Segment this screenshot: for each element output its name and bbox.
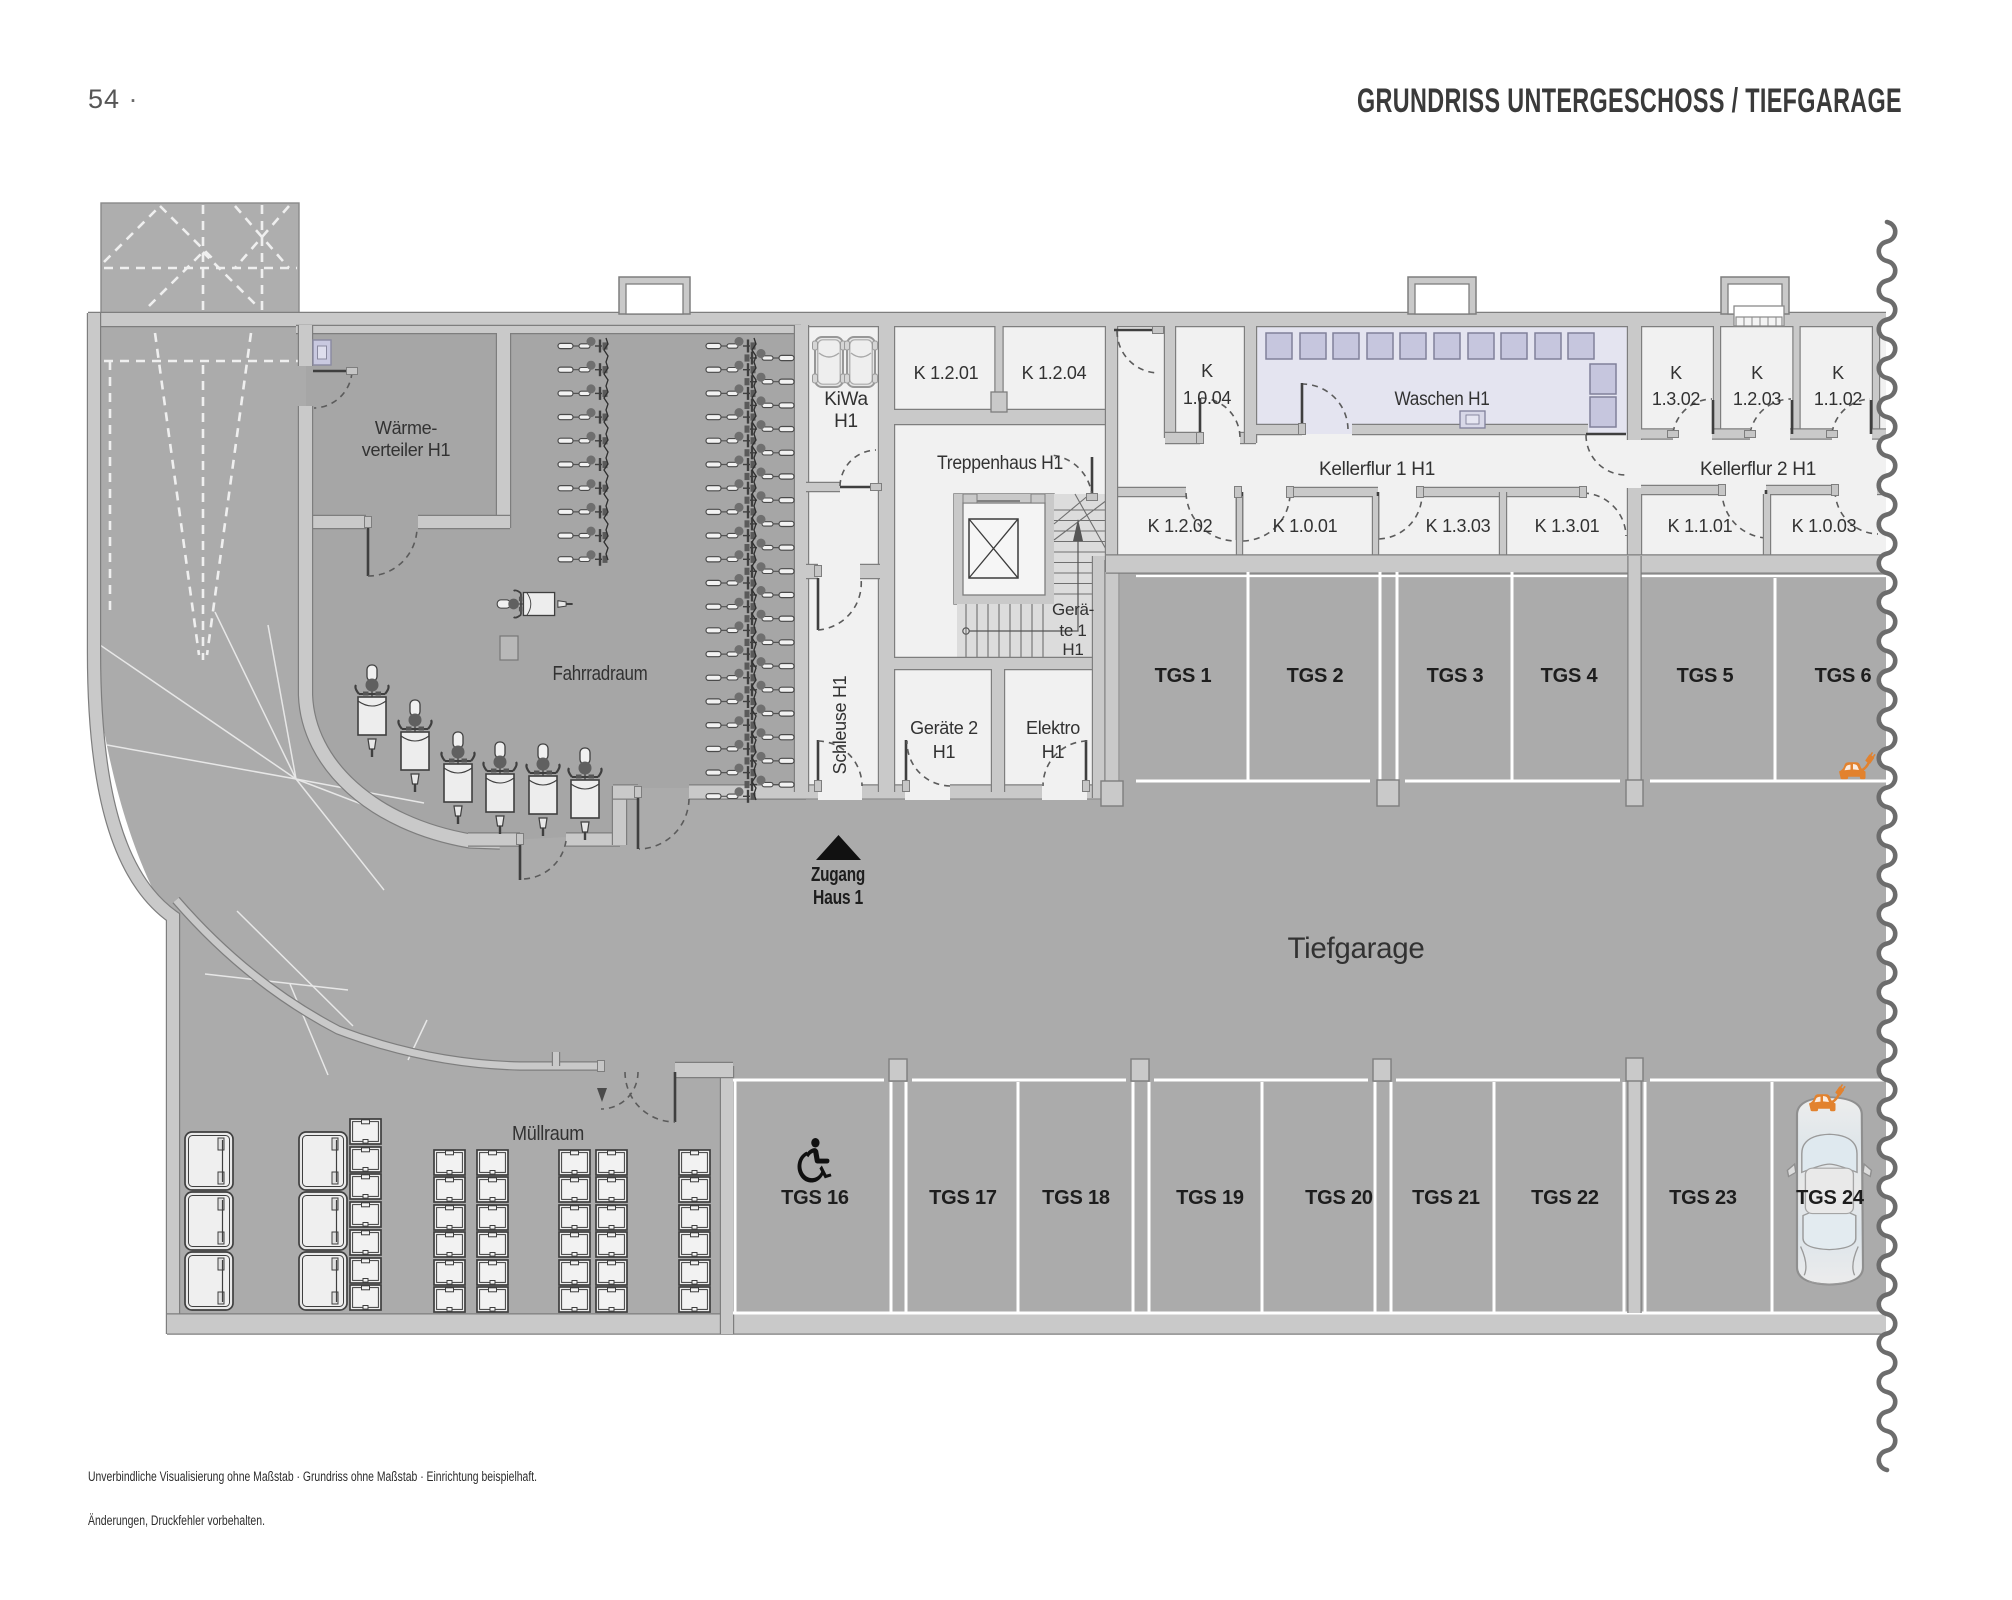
svg-text:1.3.02: 1.3.02 [1652, 389, 1701, 409]
svg-text:GRUNDRISS UNTERGESCHOSS / TIEF: GRUNDRISS UNTERGESCHOSS / TIEFGARAGE [1357, 82, 1902, 120]
svg-text:K 1.2.04: K 1.2.04 [1022, 363, 1087, 383]
svg-text:KiWa: KiWa [824, 389, 868, 410]
svg-text:K: K [1751, 363, 1763, 383]
svg-text:1.0.04: 1.0.04 [1183, 388, 1232, 408]
svg-text:Unverbindliche Visualisierung: Unverbindliche Visualisierung ohne Maßst… [88, 1469, 537, 1484]
svg-text:TGS 23: TGS 23 [1669, 1187, 1737, 1209]
svg-text:TGS 18: TGS 18 [1042, 1187, 1110, 1209]
svg-text:TGS 19: TGS 19 [1176, 1187, 1244, 1209]
svg-text:TGS 1: TGS 1 [1155, 665, 1212, 687]
svg-text:H1: H1 [933, 742, 956, 762]
svg-text:Tiefgarage: Tiefgarage [1288, 932, 1425, 965]
svg-text:te 1: te 1 [1059, 621, 1086, 640]
svg-text:TGS 3: TGS 3 [1427, 665, 1484, 687]
svg-text:TGS 5: TGS 5 [1677, 665, 1734, 687]
svg-text:Wärme-: Wärme- [375, 418, 437, 438]
svg-text:K 1.2.02: K 1.2.02 [1148, 516, 1213, 536]
svg-text:Kellerflur 1 H1: Kellerflur 1 H1 [1319, 459, 1435, 480]
svg-text:K: K [1832, 363, 1844, 383]
svg-text:Änderungen, Druckfehler vorbeh: Änderungen, Druckfehler vorbehalten. [88, 1513, 265, 1528]
svg-text:TGS 21: TGS 21 [1412, 1187, 1480, 1209]
svg-text:TGS 16: TGS 16 [781, 1187, 849, 1209]
svg-text:K: K [1201, 361, 1213, 381]
svg-text:K 1.0.03: K 1.0.03 [1792, 516, 1857, 536]
svg-text:54 ·: 54 · [88, 84, 139, 114]
svg-text:TGS 2: TGS 2 [1287, 665, 1344, 687]
svg-text:Fahrradraum: Fahrradraum [553, 663, 648, 685]
svg-text:H1: H1 [1062, 640, 1083, 659]
svg-text:K 1.2.01: K 1.2.01 [914, 363, 979, 383]
svg-text:K 1.3.01: K 1.3.01 [1535, 516, 1600, 536]
svg-text:H1: H1 [1042, 742, 1065, 762]
svg-text:Gerä-: Gerä- [1052, 600, 1094, 619]
svg-text:Treppenhaus H1: Treppenhaus H1 [937, 453, 1063, 474]
svg-text:Waschen H1: Waschen H1 [1395, 389, 1490, 410]
svg-text:Geräte 2: Geräte 2 [910, 718, 978, 738]
svg-text:H1: H1 [834, 411, 858, 432]
svg-text:K 1.0.01: K 1.0.01 [1273, 516, 1338, 536]
svg-text:K: K [1670, 363, 1682, 383]
svg-text:TGS 22: TGS 22 [1531, 1187, 1599, 1209]
svg-text:Müllraum: Müllraum [512, 1123, 584, 1145]
svg-text:TGS 24: TGS 24 [1796, 1187, 1865, 1209]
svg-text:Schleuse H1: Schleuse H1 [830, 675, 850, 774]
svg-text:K 1.3.03: K 1.3.03 [1426, 516, 1491, 536]
svg-text:TGS 20: TGS 20 [1305, 1187, 1373, 1209]
svg-text:TGS 17: TGS 17 [929, 1187, 997, 1209]
svg-text:1.2.03: 1.2.03 [1733, 389, 1782, 409]
svg-text:TGS 4: TGS 4 [1541, 665, 1599, 687]
svg-text:K 1.1.01: K 1.1.01 [1668, 516, 1733, 536]
svg-text:Haus 1: Haus 1 [813, 887, 863, 909]
svg-text:Kellerflur 2 H1: Kellerflur 2 H1 [1700, 459, 1816, 480]
svg-text:Elektro: Elektro [1026, 718, 1080, 738]
svg-text:1.1.02: 1.1.02 [1814, 389, 1863, 409]
svg-text:TGS 6: TGS 6 [1815, 665, 1872, 687]
svg-text:Zugang: Zugang [811, 864, 865, 886]
svg-text:verteiler H1: verteiler H1 [362, 440, 451, 460]
